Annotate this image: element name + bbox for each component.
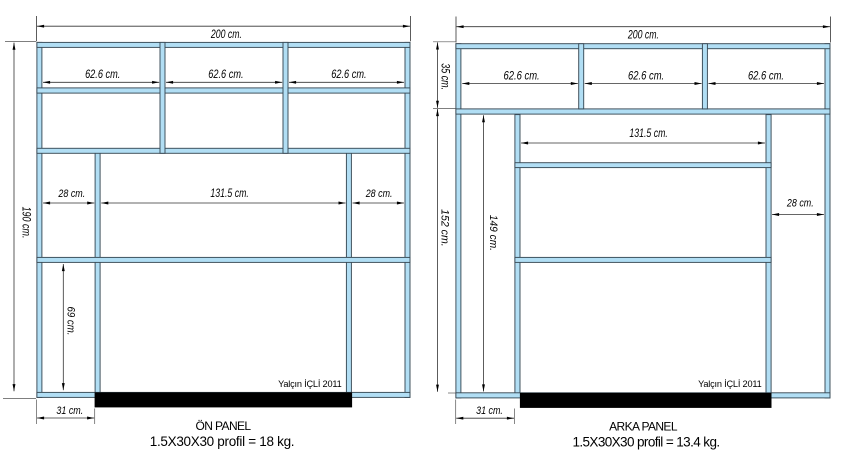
svg-text:200 cm.: 200 cm.	[210, 29, 242, 41]
svg-text:62.6 cm.: 62.6 cm.	[748, 70, 784, 83]
svg-text:1.5X30X30 profil = 13.4 kg.: 1.5X30X30 profil = 13.4 kg.	[572, 435, 719, 450]
svg-text:Yalçın İÇLİ 2011: Yalçın İÇLİ 2011	[698, 379, 761, 389]
svg-text:31 cm.: 31 cm.	[476, 405, 503, 417]
svg-text:152 cm.: 152 cm.	[438, 209, 450, 247]
svg-text:28 cm.: 28 cm.	[58, 188, 86, 200]
svg-text:69 cm.: 69 cm.	[64, 307, 77, 336]
svg-text:31 cm.: 31 cm.	[56, 405, 83, 417]
svg-text:131.5 cm.: 131.5 cm.	[629, 128, 667, 140]
svg-text:131.5 cm.: 131.5 cm.	[210, 188, 248, 200]
svg-text:35 cm.: 35 cm.	[438, 63, 450, 90]
svg-text:28 cm.: 28 cm.	[786, 198, 814, 210]
svg-text:62.6 cm.: 62.6 cm.	[628, 70, 664, 83]
svg-text:62.6 cm.: 62.6 cm.	[331, 69, 366, 81]
svg-text:62.6 cm.: 62.6 cm.	[208, 69, 243, 81]
svg-text:62.6 cm.: 62.6 cm.	[504, 70, 540, 83]
svg-text:ÖN PANEL: ÖN PANEL	[196, 419, 252, 433]
svg-text:62.6 cm.: 62.6 cm.	[85, 69, 120, 81]
svg-text:200 cm.: 200 cm.	[627, 29, 659, 41]
svg-text:28 cm.: 28 cm.	[365, 188, 393, 200]
svg-text:190 cm.: 190 cm.	[19, 207, 31, 239]
svg-text:ARKA PANEL: ARKA PANEL	[609, 420, 678, 434]
svg-text:149 cm.: 149 cm.	[487, 215, 500, 251]
svg-text:Yalçın İÇLİ 2011: Yalçın İÇLİ 2011	[278, 379, 341, 389]
svg-text:1.5X30X30 profil = 18 kg.: 1.5X30X30 profil = 18 kg.	[150, 434, 294, 449]
